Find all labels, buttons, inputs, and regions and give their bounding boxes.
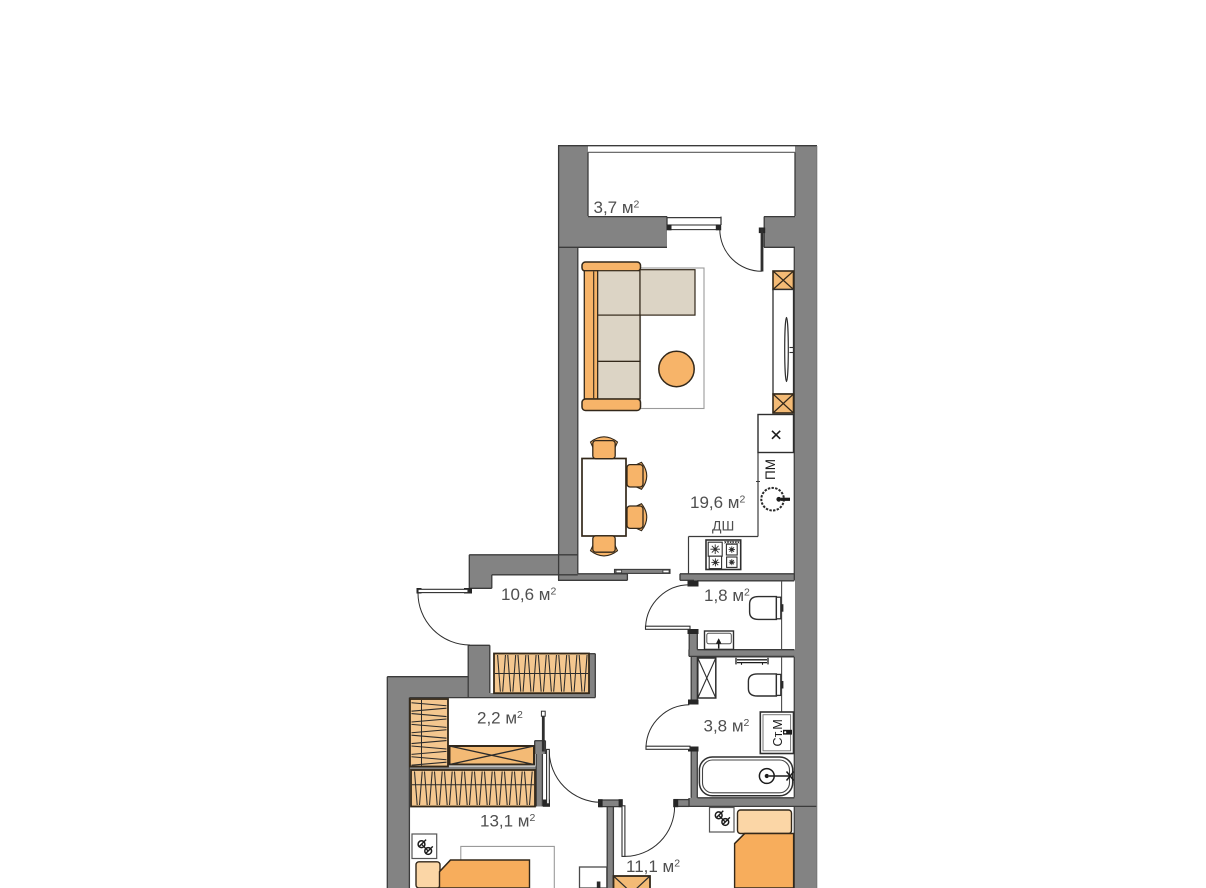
svg-text:3,7 м2: 3,7 м2 xyxy=(594,198,640,217)
svg-text:10,6 м2: 10,6 м2 xyxy=(501,585,557,604)
svg-text:2,2 м2: 2,2 м2 xyxy=(477,709,523,728)
svg-text:3,8 м2: 3,8 м2 xyxy=(704,717,750,736)
svg-text:19,6 м2: 19,6 м2 xyxy=(690,493,746,512)
svg-text:ДШ: ДШ xyxy=(712,518,734,534)
svg-text:1,8 м2: 1,8 м2 xyxy=(704,586,750,605)
svg-text:13,1 м2: 13,1 м2 xyxy=(480,812,536,831)
svg-text:Ст.М: Ст.М xyxy=(771,719,785,746)
svg-text:11,1 м2: 11,1 м2 xyxy=(626,857,680,876)
svg-text:ПМ: ПМ xyxy=(763,459,778,480)
